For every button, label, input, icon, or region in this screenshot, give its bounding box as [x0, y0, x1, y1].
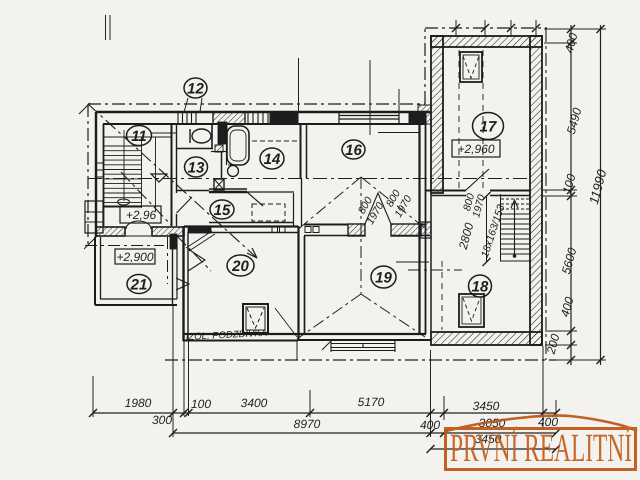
svg-text:16: 16	[345, 142, 362, 159]
svg-text:21: 21	[130, 277, 148, 294]
svg-text:+2,900: +2,900	[116, 250, 153, 264]
svg-text:300: 300	[152, 413, 172, 427]
svg-text:3400: 3400	[241, 396, 268, 410]
svg-text:11: 11	[131, 128, 147, 145]
svg-text:1980: 1980	[125, 396, 152, 410]
svg-text:17: 17	[480, 119, 497, 136]
svg-text:12: 12	[187, 81, 204, 98]
svg-text:3450: 3450	[473, 399, 500, 413]
svg-text:18: 18	[472, 279, 489, 296]
svg-text:5170: 5170	[358, 395, 385, 409]
svg-text:19: 19	[375, 270, 392, 287]
svg-text:+2,96: +2,96	[126, 208, 157, 222]
svg-text:15: 15	[214, 202, 231, 219]
svg-text:13: 13	[188, 160, 205, 177]
svg-text:400: 400	[420, 418, 440, 432]
svg-text:20: 20	[231, 258, 249, 275]
svg-text:PRVNÍ REALITNÍ: PRVNÍ REALITNÍ	[450, 425, 632, 470]
svg-text:+2,960: +2,960	[457, 142, 494, 156]
svg-text:100: 100	[191, 397, 211, 411]
svg-text:8970: 8970	[294, 417, 321, 431]
svg-text:14: 14	[264, 151, 281, 168]
